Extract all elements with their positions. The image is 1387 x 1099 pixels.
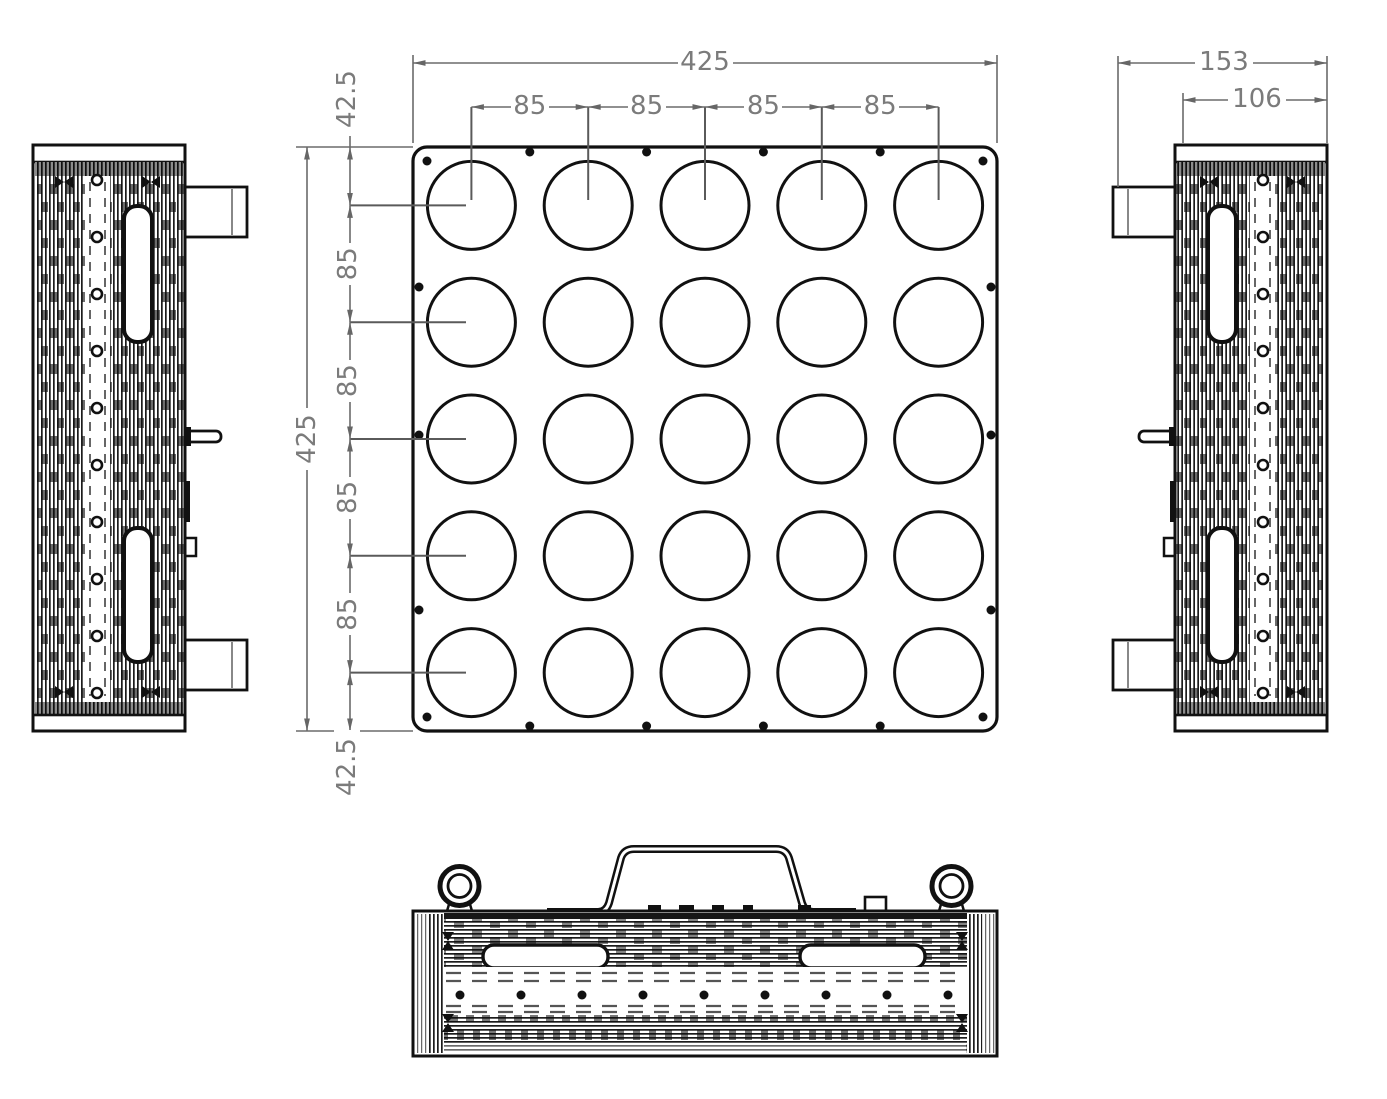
bottom-view <box>413 849 997 1056</box>
dim-label-overall-height: 425 <box>292 414 322 464</box>
dim-label-chain-1: 85 <box>333 247 363 280</box>
front-view <box>413 147 997 731</box>
carry-handle <box>547 849 856 912</box>
dim-label-depth-overall: 153 <box>1199 47 1249 77</box>
dim-label-pitch-1: 85 <box>513 91 546 121</box>
eye-bolt-right <box>932 867 971 912</box>
eye-bolt-left <box>440 867 479 912</box>
left-side-view <box>33 145 247 731</box>
vent-slot-left <box>483 945 608 968</box>
right-side-view <box>1113 145 1327 731</box>
vent-slot-right <box>800 945 925 968</box>
dim-label-depth-body: 106 <box>1232 84 1282 114</box>
dim-label-pitch-3: 85 <box>747 91 780 121</box>
dim-label-chain-3: 85 <box>333 481 363 514</box>
drawing-sheet: 425 85 85 85 85 425 42.5 85 85 85 85 <box>0 0 1387 1099</box>
dim-label-overall-width: 425 <box>680 47 730 77</box>
end-cap-left <box>416 914 429 1053</box>
connector-tab <box>865 897 886 911</box>
end-cap-right <box>982 914 995 1053</box>
dim-label-chain-top: 42.5 <box>332 70 362 128</box>
dim-label-chain-2: 85 <box>333 364 363 397</box>
dim-label-chain-bottom: 42.5 <box>332 738 362 796</box>
dim-label-pitch-4: 85 <box>864 91 897 121</box>
technical-drawing: 425 85 85 85 85 425 42.5 85 85 85 85 <box>0 0 1387 1099</box>
dim-label-chain-4: 85 <box>333 598 363 631</box>
panel-outline <box>413 147 997 731</box>
dim-label-pitch-2: 85 <box>630 91 663 121</box>
